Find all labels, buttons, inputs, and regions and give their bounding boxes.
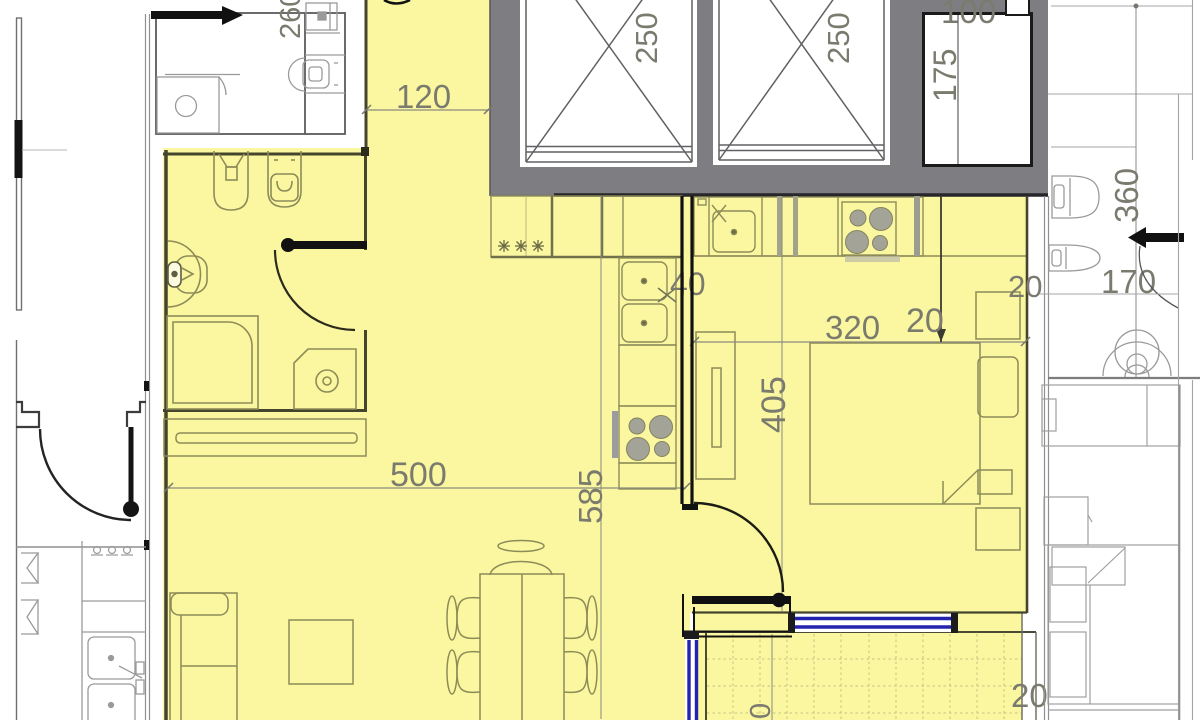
svg-text:20: 20 [1011, 677, 1048, 714]
svg-text:260: 260 [275, 0, 307, 39]
svg-text:500: 500 [390, 456, 447, 494]
svg-text:20: 20 [906, 302, 944, 340]
svg-text:175: 175 [927, 49, 963, 102]
svg-text:40: 40 [670, 266, 706, 302]
svg-text:405: 405 [755, 376, 793, 433]
svg-text:100: 100 [941, 0, 996, 30]
svg-text:250: 250 [821, 12, 856, 64]
svg-text:360: 360 [1108, 168, 1145, 223]
svg-text:120: 120 [396, 78, 451, 115]
svg-text:585: 585 [572, 469, 609, 524]
svg-text:20: 20 [1008, 269, 1042, 304]
svg-text:320: 320 [825, 309, 880, 346]
svg-text:250: 250 [629, 12, 664, 64]
svg-text:0: 0 [745, 703, 777, 719]
